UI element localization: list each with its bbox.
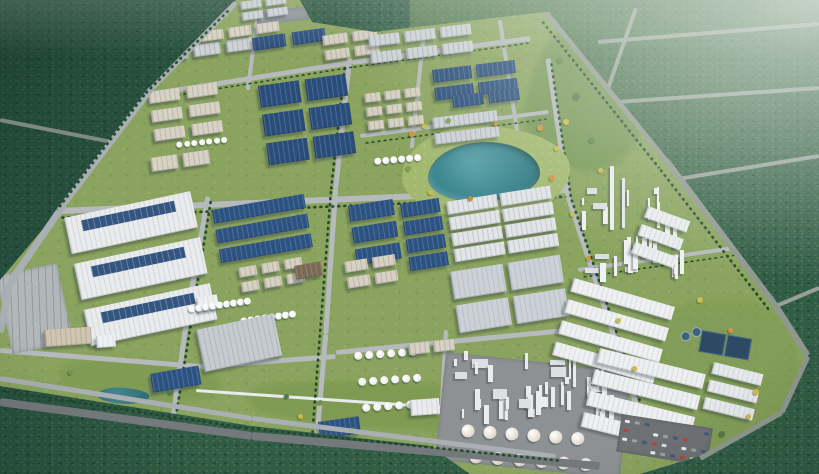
boundary-tree-line <box>540 19 661 169</box>
perimeter-road <box>699 410 783 460</box>
aerial-industrial-park-render <box>0 0 819 474</box>
boundary-tree-line <box>56 93 147 211</box>
perimeter-road <box>0 281 13 332</box>
perimeter-road <box>0 398 253 440</box>
perimeter-road <box>7 202 67 284</box>
boundary-tree-line <box>250 426 560 462</box>
boundary-tree-line <box>658 167 771 311</box>
perimeter-roads-layer <box>0 0 819 474</box>
perimeter-road <box>773 304 810 357</box>
perimeter-road <box>664 158 779 308</box>
perimeter-road <box>0 376 252 421</box>
perimeter-road <box>780 355 811 413</box>
boundary-tree-line <box>145 9 232 96</box>
perimeter-road <box>544 10 668 161</box>
